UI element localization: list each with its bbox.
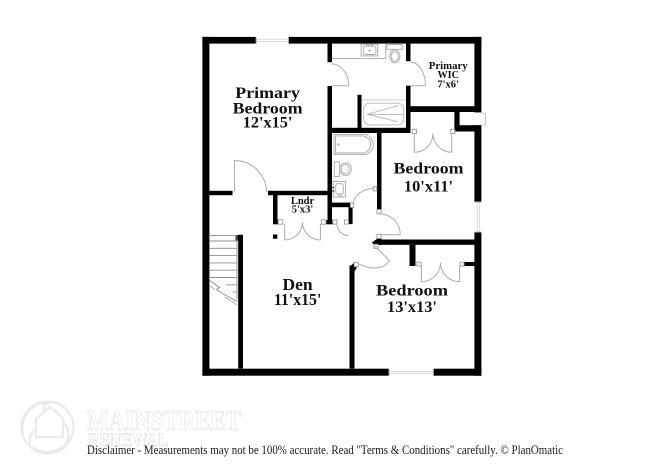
- svg-text:Disclaimer - Measurements may: Disclaimer - Measurements may not be 100…: [87, 443, 564, 457]
- svg-text:Primary: Primary: [235, 85, 300, 102]
- svg-text:5'x3': 5'x3': [292, 205, 314, 216]
- svg-text:Bedroom: Bedroom: [376, 283, 449, 300]
- svg-text:7'x6': 7'x6': [437, 79, 459, 90]
- svg-text:10'x11': 10'x11': [404, 178, 453, 195]
- svg-text:13'x13': 13'x13': [387, 299, 437, 316]
- svg-text:Bedroom: Bedroom: [394, 161, 465, 178]
- svg-text:11'x15': 11'x15': [274, 290, 322, 309]
- svg-text:12'x15': 12'x15': [243, 114, 293, 131]
